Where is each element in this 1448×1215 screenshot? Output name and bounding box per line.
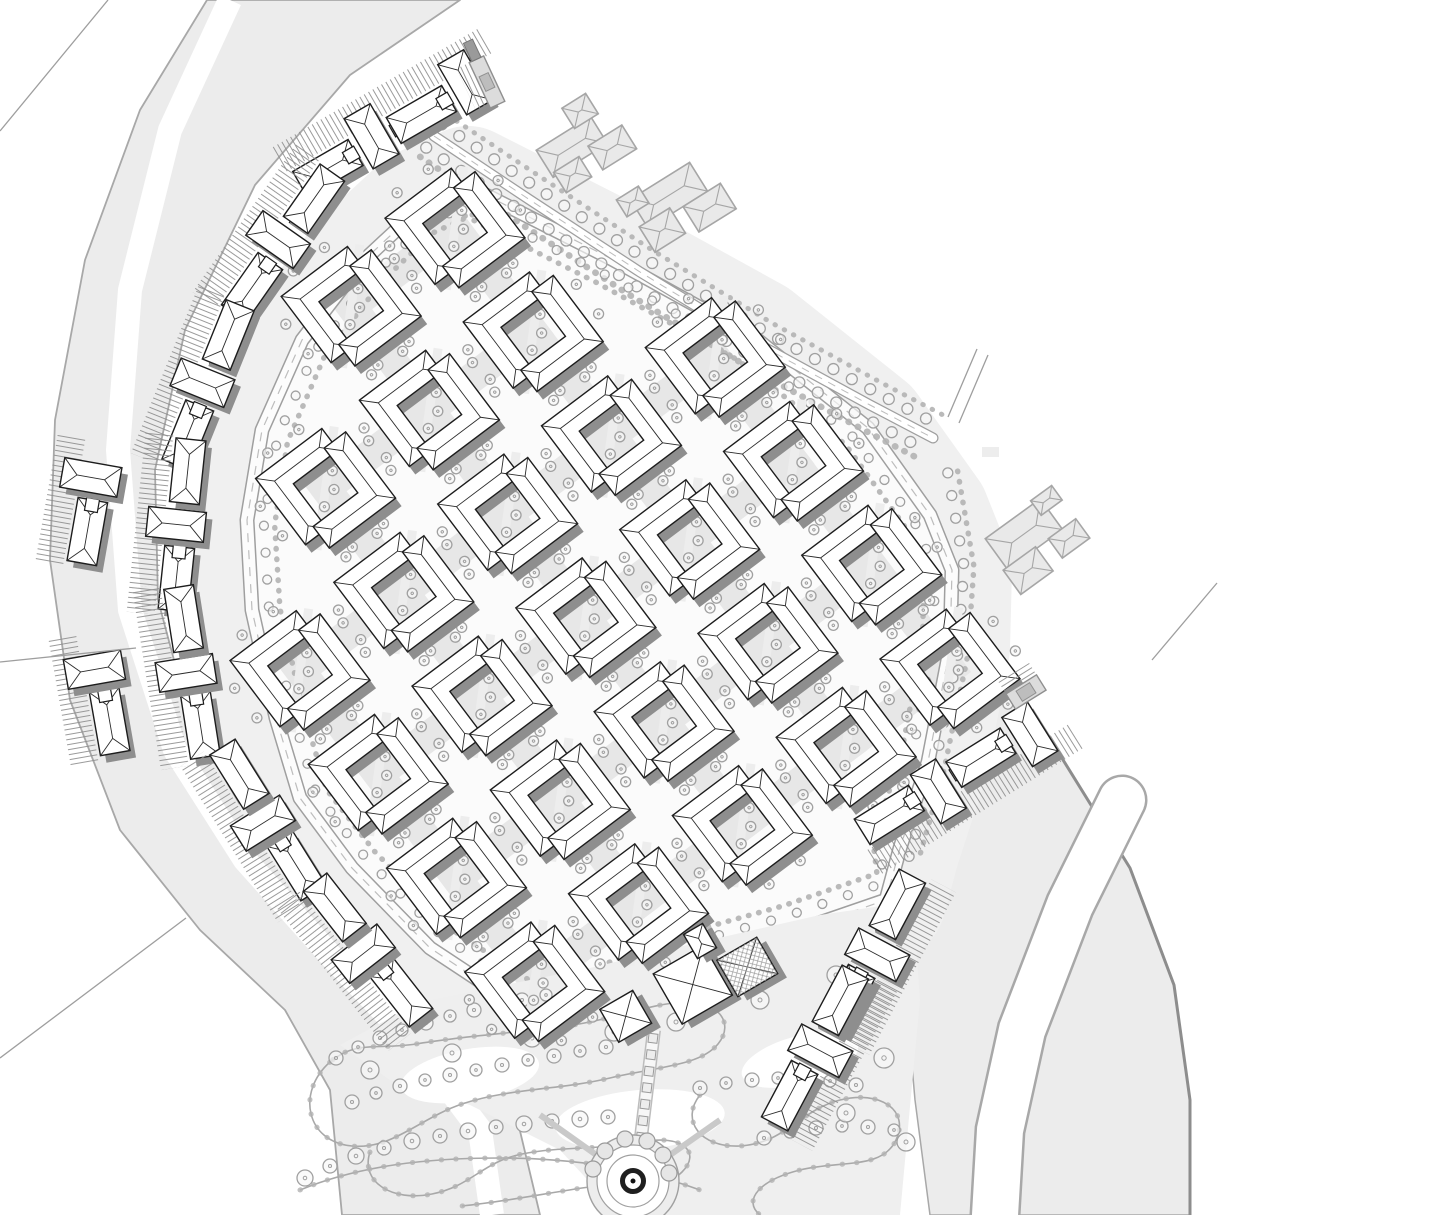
tree-icon — [874, 1048, 894, 1068]
tree-icon — [767, 916, 776, 925]
tree-icon — [489, 1120, 503, 1134]
tree-icon — [896, 497, 905, 506]
tree-icon — [671, 309, 680, 318]
petal-planter — [639, 1133, 655, 1149]
tree-icon — [433, 1129, 447, 1143]
tree-icon — [861, 1120, 875, 1134]
tree-icon — [947, 491, 957, 501]
tree-icon — [524, 177, 535, 188]
tree-icon — [849, 407, 860, 418]
tree-icon — [905, 436, 916, 447]
tree-icon — [865, 384, 876, 395]
tree-icon — [959, 559, 969, 569]
tree-icon — [880, 475, 889, 484]
tree-icon — [578, 246, 589, 257]
tree-icon — [454, 131, 465, 142]
tree-icon — [528, 233, 537, 242]
tree-icon — [377, 1141, 391, 1155]
tree-icon — [326, 807, 335, 816]
tree-icon — [291, 391, 300, 400]
tree-icon — [443, 1068, 457, 1082]
fountain-jet — [631, 1179, 636, 1184]
tree-icon — [489, 154, 500, 165]
axis-paver — [644, 1066, 654, 1076]
tree-icon — [263, 575, 272, 584]
tree-icon — [720, 1077, 732, 1089]
tree-icon — [665, 268, 676, 279]
tree-icon — [869, 882, 878, 891]
tree-icon — [757, 1131, 771, 1145]
tree-icon — [526, 212, 537, 223]
tree-icon — [421, 142, 432, 153]
tree-icon — [745, 1073, 759, 1087]
utility-pad — [982, 447, 999, 457]
tree-icon — [348, 1148, 364, 1164]
tree-icon — [888, 1124, 900, 1136]
tree-icon — [837, 1104, 855, 1122]
tree-icon — [272, 441, 281, 450]
tree-icon — [843, 891, 852, 900]
tree-icon — [601, 1110, 615, 1124]
tree-icon — [864, 454, 873, 463]
tree-icon — [329, 1051, 343, 1065]
tree-icon — [809, 354, 820, 365]
site-plan-svg — [0, 0, 1448, 1215]
tree-icon — [784, 382, 793, 391]
petal-planter — [661, 1165, 677, 1181]
tree-icon — [470, 1064, 482, 1076]
tree-icon — [261, 548, 270, 557]
petal-planter — [585, 1161, 601, 1177]
tree-icon — [648, 296, 657, 305]
tree-icon — [951, 513, 961, 523]
link-block — [84, 497, 99, 512]
tree-icon — [818, 899, 827, 908]
tree-icon — [934, 740, 944, 750]
tree-icon — [259, 521, 268, 530]
tree-icon — [574, 1045, 586, 1057]
tree-icon — [596, 258, 607, 269]
tree-icon — [302, 366, 311, 375]
tree-icon — [438, 154, 449, 165]
master-plan-document — [0, 0, 1448, 1215]
tree-icon — [404, 1133, 420, 1149]
tree-icon — [831, 397, 842, 408]
tree-icon — [443, 1044, 461, 1062]
tree-icon — [516, 1116, 532, 1132]
tree-icon — [419, 1074, 431, 1086]
tree-icon — [920, 413, 931, 424]
tree-icon — [683, 279, 694, 290]
tree-icon — [794, 377, 805, 388]
tree-icon — [693, 1081, 707, 1095]
tree-icon — [897, 1133, 915, 1151]
tree-icon — [323, 1159, 337, 1173]
tree-icon — [943, 468, 953, 478]
tree-icon — [600, 270, 609, 279]
tree-icon — [599, 1040, 613, 1054]
tree-icon — [611, 235, 622, 246]
tree-icon — [471, 142, 482, 153]
tree-icon — [460, 1123, 476, 1139]
tree-icon — [883, 394, 894, 405]
tree-icon — [393, 1079, 407, 1093]
tree-icon — [958, 581, 968, 591]
tree-icon — [868, 417, 879, 428]
tree-icon — [552, 245, 561, 254]
link-block — [172, 545, 186, 559]
chain-building-long — [169, 438, 213, 512]
tree-icon — [456, 943, 465, 952]
tree-icon — [886, 427, 897, 438]
tree-icon — [741, 923, 750, 932]
tree-icon — [576, 258, 585, 267]
axis-paver — [642, 1083, 652, 1093]
chain-building-cross — [145, 506, 213, 549]
tree-icon — [342, 829, 351, 838]
tree-icon — [849, 1078, 863, 1092]
tree-icon — [370, 1087, 382, 1099]
tree-icon — [377, 870, 386, 879]
tree-icon — [495, 1058, 509, 1072]
petal-planter — [597, 1143, 613, 1159]
tree-icon — [955, 536, 965, 546]
tree-icon — [812, 387, 823, 398]
tree-icon — [543, 223, 554, 234]
tree-icon — [541, 189, 552, 200]
tree-icon — [792, 908, 801, 917]
tree-icon — [506, 165, 517, 176]
tree-icon — [613, 269, 624, 280]
tree-icon — [295, 733, 304, 742]
tree-icon — [828, 364, 839, 375]
tree-icon — [594, 223, 605, 234]
tree-icon — [561, 235, 572, 246]
tree-icon — [522, 1054, 534, 1066]
axis-paver — [640, 1099, 650, 1109]
tree-icon — [345, 1095, 359, 1109]
petal-planter — [655, 1147, 671, 1163]
axis-paver — [646, 1050, 656, 1060]
tree-icon — [444, 1010, 456, 1022]
tree-icon — [572, 1111, 588, 1127]
petal-planter — [617, 1131, 633, 1147]
tree-icon — [846, 374, 857, 385]
tree-icon — [791, 343, 802, 354]
tree-icon — [629, 246, 640, 257]
tree-icon — [547, 1049, 561, 1063]
axis-paver — [638, 1116, 648, 1126]
tree-icon — [361, 1061, 379, 1079]
tree-icon — [359, 850, 368, 859]
tree-icon — [576, 212, 587, 223]
axis-paver — [648, 1033, 658, 1043]
tree-icon — [559, 200, 570, 211]
tree-icon — [280, 416, 289, 425]
tree-icon — [902, 403, 913, 414]
tree-icon — [297, 1170, 313, 1186]
tree-icon — [647, 258, 658, 269]
tree-icon — [624, 283, 633, 292]
tree-icon — [352, 1041, 364, 1053]
